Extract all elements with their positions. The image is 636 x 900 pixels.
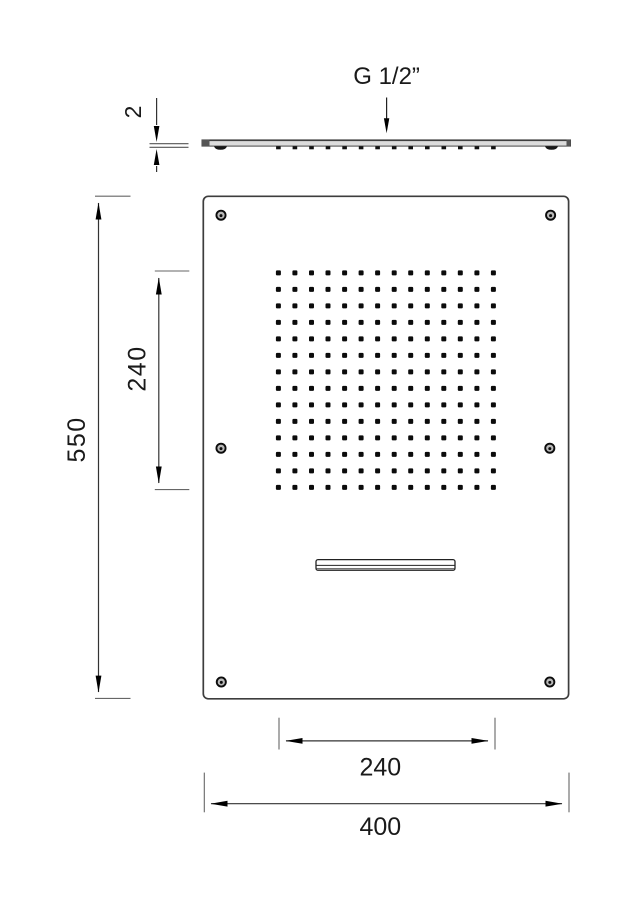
svg-text:2: 2 [120, 106, 146, 119]
svg-text:400: 400 [359, 813, 401, 841]
svg-text:240: 240 [359, 754, 401, 782]
svg-text:550: 550 [63, 416, 91, 462]
svg-text:G 1/2”: G 1/2” [353, 63, 420, 90]
svg-text:240: 240 [124, 345, 152, 391]
